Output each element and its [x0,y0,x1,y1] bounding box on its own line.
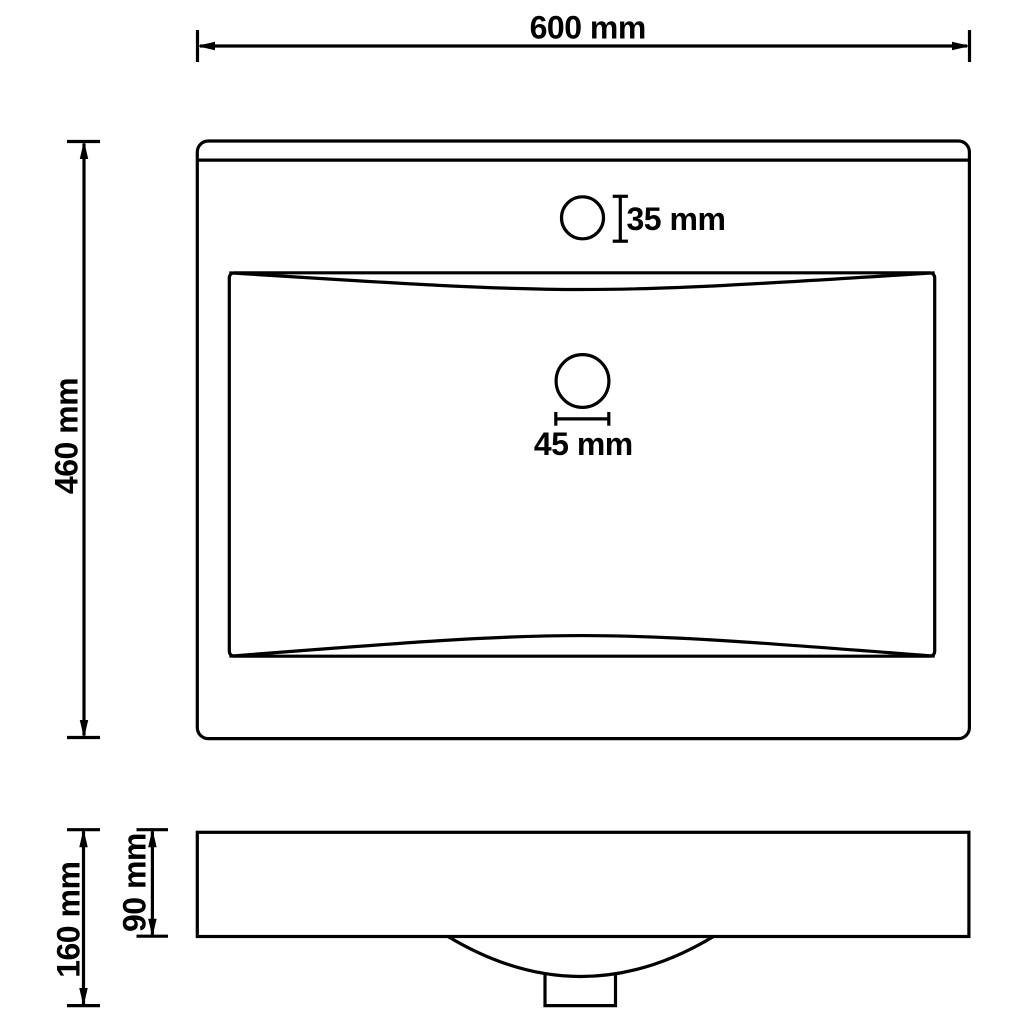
svg-text:600 mm: 600 mm [530,10,646,46]
svg-text:460 mm: 460 mm [49,378,85,494]
svg-text:35 mm: 35 mm [627,201,726,237]
svg-text:90 mm: 90 mm [117,833,153,932]
svg-text:160 mm: 160 mm [51,862,87,978]
svg-text:45 mm: 45 mm [534,426,633,462]
